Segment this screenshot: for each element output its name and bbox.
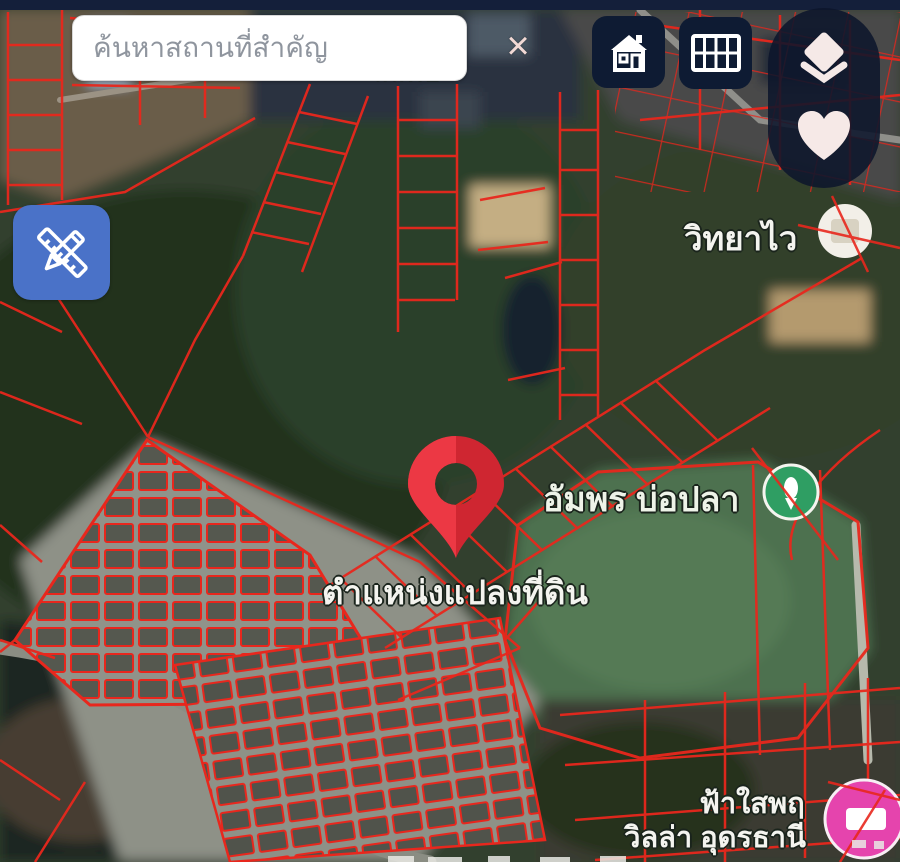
location-pin-icon (396, 436, 516, 558)
table-grid-icon (691, 34, 741, 72)
search-box (72, 15, 467, 81)
map-canvas[interactable] (0, 0, 900, 862)
location-pin[interactable] (396, 436, 516, 558)
ruler-pencil-icon (31, 222, 93, 284)
layers-icon (795, 31, 853, 89)
map-label-school: วิทยาไว (684, 212, 797, 265)
heart-icon (796, 110, 852, 162)
layer-tools-panel (768, 8, 880, 188)
map-label-estate-line2: วิลล่า อุดรธานี (624, 814, 806, 860)
favorites-button[interactable] (789, 101, 859, 171)
table-view-button[interactable] (679, 17, 752, 89)
layers-button[interactable] (789, 25, 859, 95)
close-icon[interactable]: × (497, 26, 539, 68)
search-input[interactable] (73, 16, 466, 80)
parcel-location-label: ตำแหน่งแปลงที่ดิน (322, 566, 588, 619)
measure-draw-button[interactable] (13, 205, 110, 300)
home-icon (607, 30, 651, 74)
map-app: ลลที่บ วิทยาไว อัมพร บ่อปลา ตำแหน่งแปลงท… (0, 0, 900, 862)
home-button[interactable] (592, 16, 665, 88)
top-status-bar (0, 0, 900, 10)
map-label-fish-pond: อัมพร บ่อปลา (543, 472, 739, 526)
